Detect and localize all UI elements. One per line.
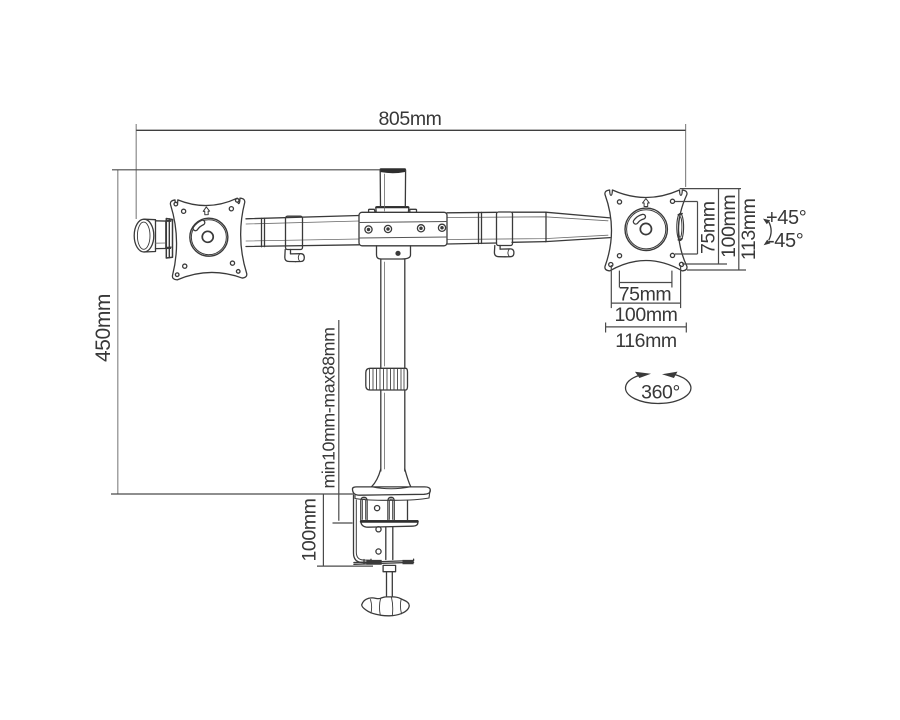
svg-text:100mm: 100mm [718, 195, 740, 258]
svg-text:min10mm-max88mm: min10mm-max88mm [319, 328, 339, 489]
svg-text:100mm: 100mm [299, 498, 321, 561]
svg-text:116mm: 116mm [615, 330, 677, 352]
svg-text:805mm: 805mm [378, 108, 441, 130]
svg-text:75mm: 75mm [698, 201, 720, 254]
svg-text:-45°: -45° [768, 230, 803, 252]
svg-text:100mm: 100mm [614, 304, 677, 326]
svg-text:75mm: 75mm [619, 284, 672, 306]
svg-text:360°: 360° [641, 382, 680, 404]
svg-text:+45°: +45° [766, 207, 806, 229]
svg-text:450mm: 450mm [92, 294, 115, 362]
svg-text:113mm: 113mm [738, 199, 760, 261]
